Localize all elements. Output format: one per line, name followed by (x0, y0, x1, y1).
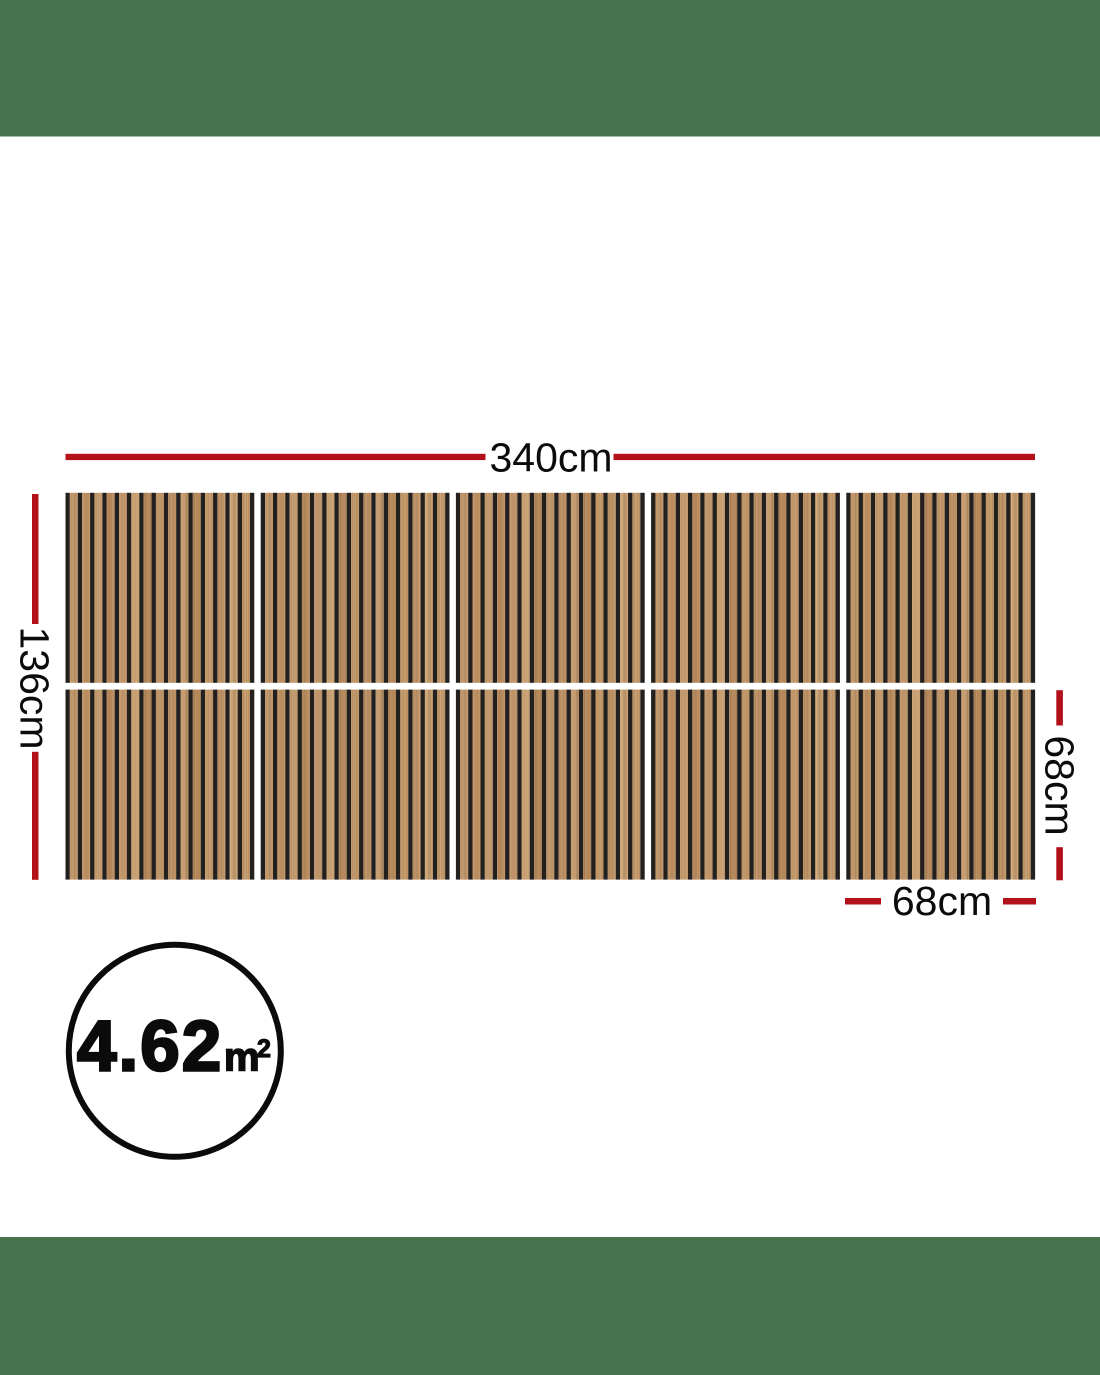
svg-text:68cm: 68cm (892, 878, 992, 924)
svg-text:m: m (224, 1036, 260, 1080)
svg-text:2: 2 (257, 1035, 271, 1063)
svg-text:68cm: 68cm (1037, 735, 1083, 835)
svg-text:136cm: 136cm (12, 626, 58, 749)
svg-text:340cm: 340cm (489, 435, 612, 481)
svg-text:4.62: 4.62 (77, 1008, 223, 1087)
